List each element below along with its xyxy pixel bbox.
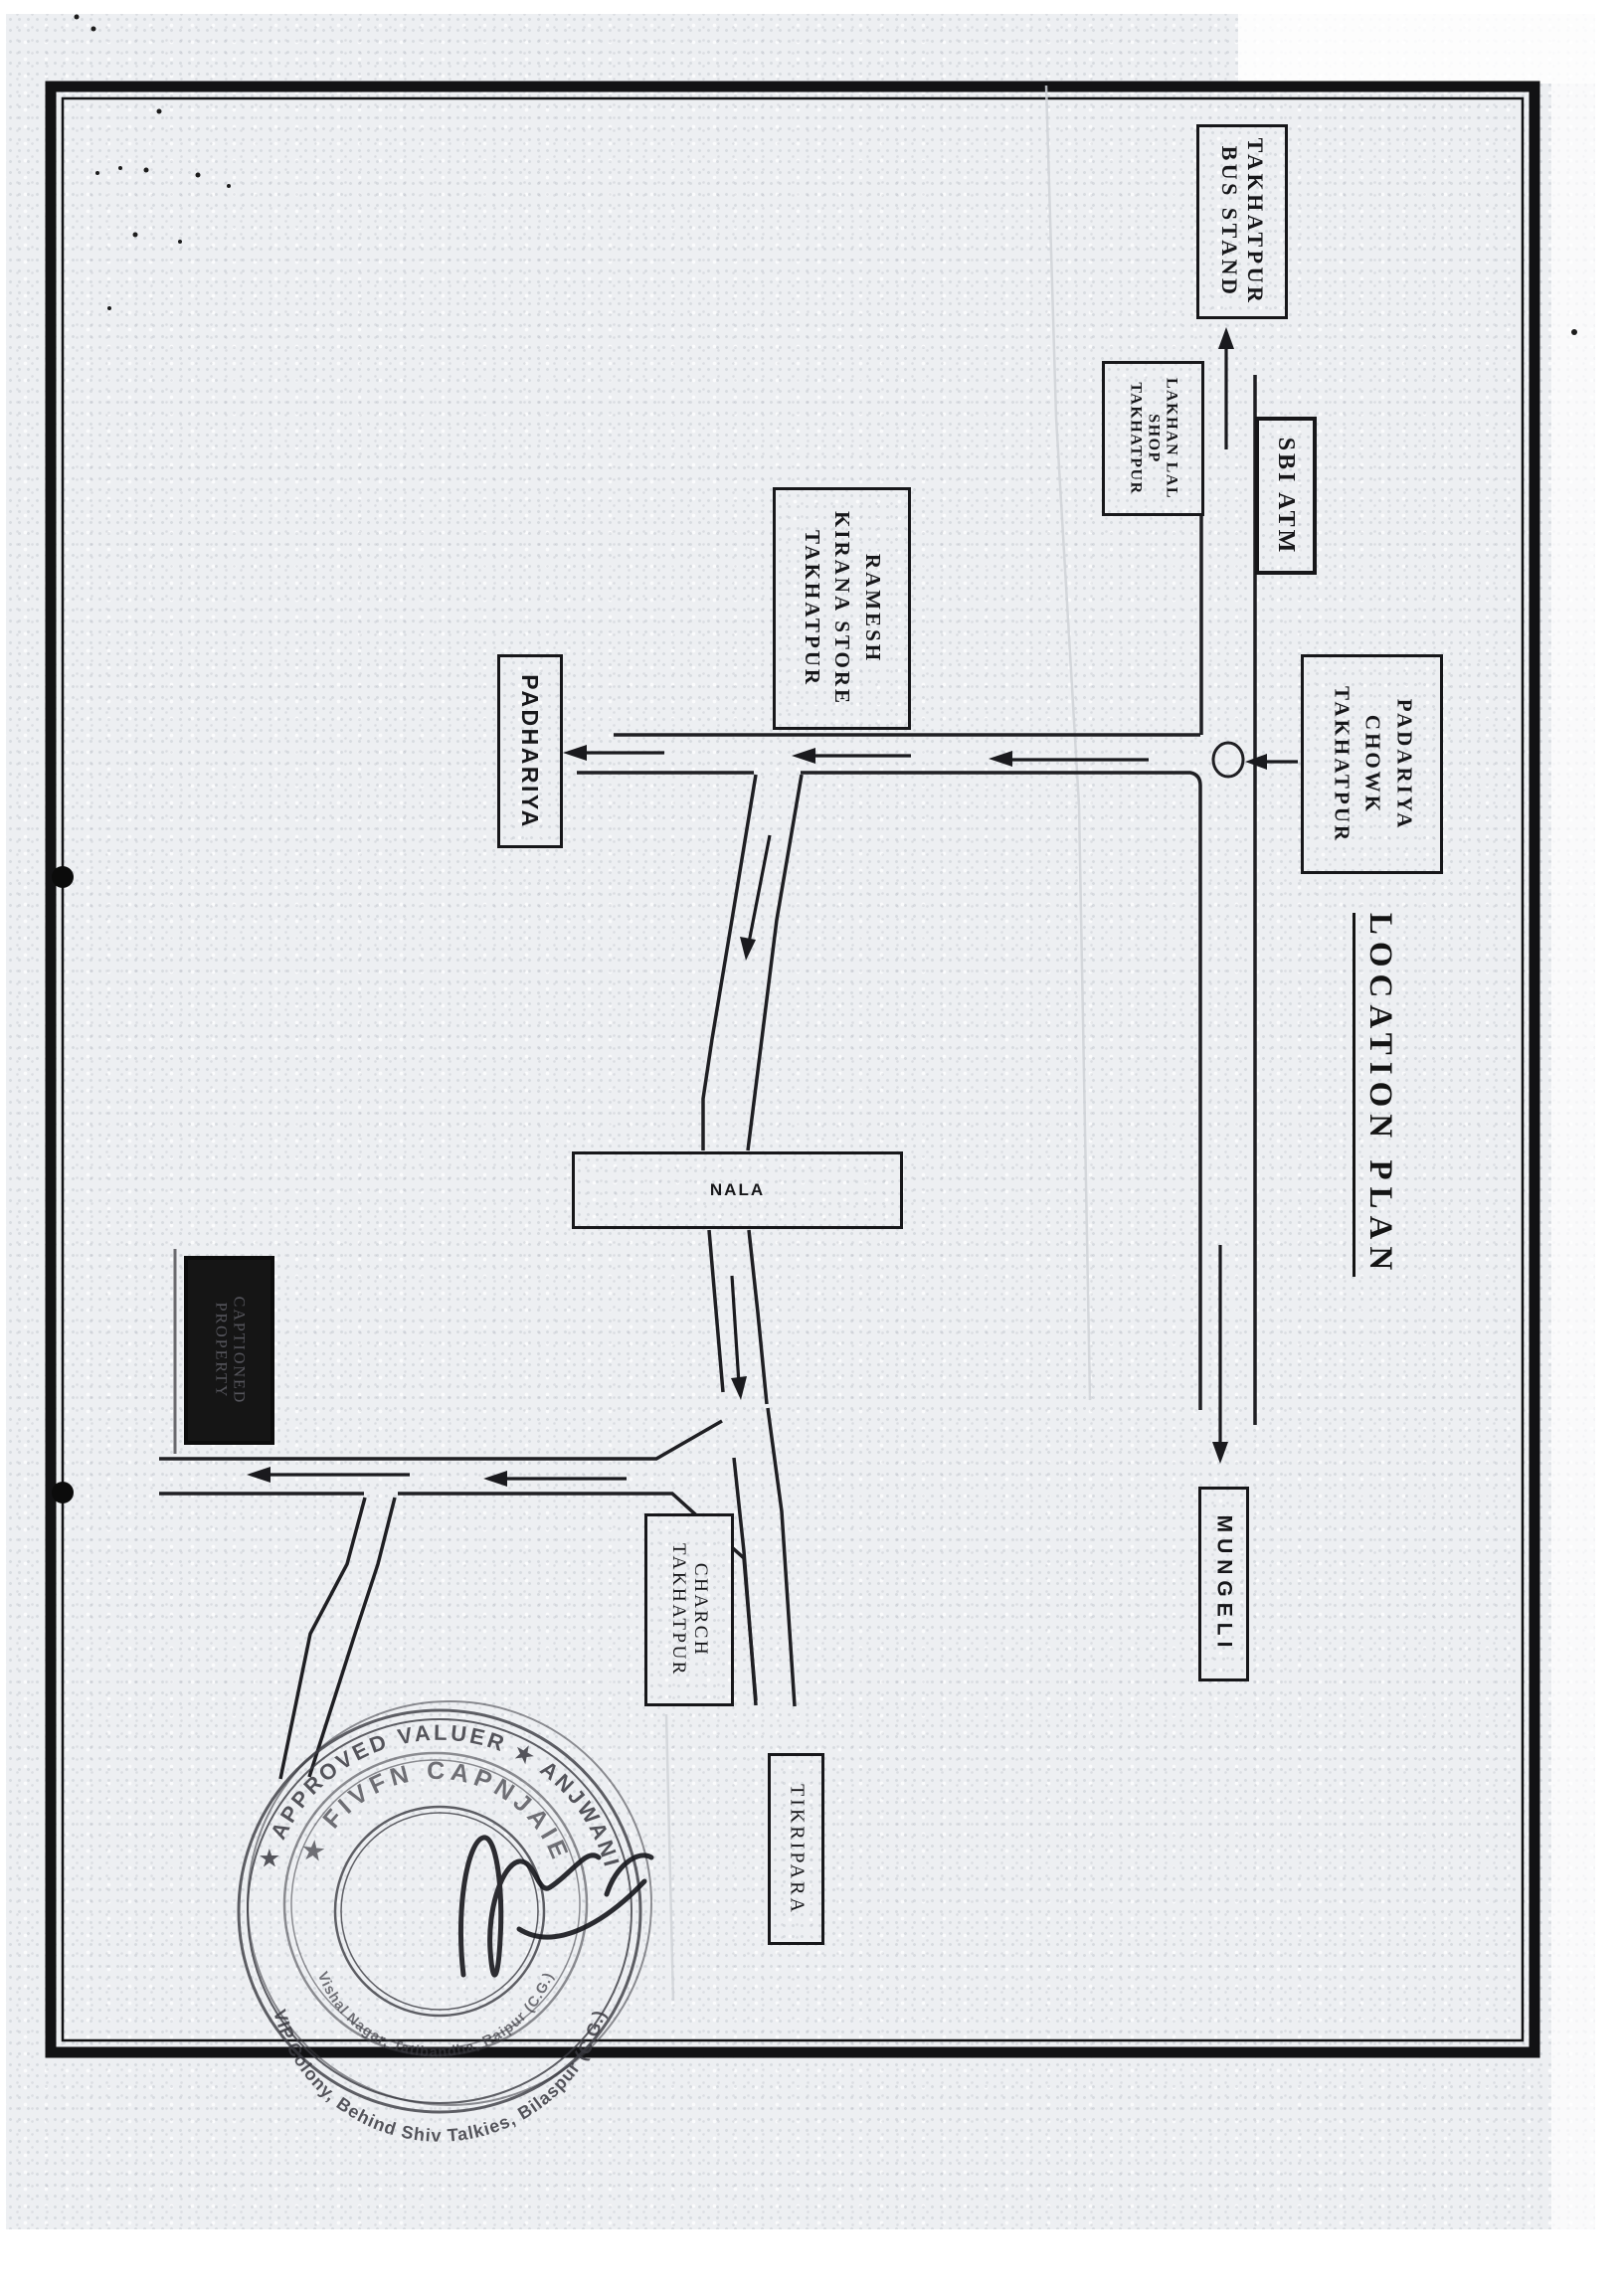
arrow-up-bus-stand bbox=[1218, 327, 1234, 349]
label-text: BUS STAND bbox=[1216, 146, 1242, 298]
label-text: CAPTIONED bbox=[230, 1297, 248, 1405]
label-text: TAKHATPUR bbox=[1325, 685, 1356, 842]
label-text: MUNGELI bbox=[1212, 1515, 1236, 1654]
label-box-padhariya: PADHARIYA bbox=[497, 654, 563, 848]
dust-specks bbox=[75, 15, 1578, 336]
church-road-left-edge bbox=[734, 1458, 756, 1705]
label-text: KIRANA STORE bbox=[826, 511, 856, 706]
branch-road-left-edge bbox=[703, 775, 756, 1150]
label-text: SBI ATM bbox=[1273, 437, 1300, 555]
label-text: PADARIYA bbox=[1387, 698, 1419, 830]
branch-road-right-below-nala bbox=[749, 1230, 767, 1404]
chowk-circle bbox=[1213, 743, 1243, 777]
arrow-down-nala bbox=[731, 1376, 747, 1400]
label-text: TAKHATPUR bbox=[1242, 138, 1268, 306]
label-text: TAKHATPUR bbox=[797, 530, 826, 687]
branch-road-right-edge bbox=[748, 775, 802, 1150]
label-text: CHARCH bbox=[689, 1563, 711, 1657]
arrow-down-mungeli bbox=[1212, 1442, 1228, 1464]
arrow-left-property-east bbox=[483, 1471, 507, 1487]
label-text: TAKHATPUR bbox=[1127, 382, 1145, 494]
label-text: TIKRIPARA bbox=[785, 1784, 808, 1915]
scan-fold-lines bbox=[666, 86, 1090, 2001]
label-text: PADHARIYA bbox=[517, 674, 544, 828]
page-title-block: LOCATION PLAN bbox=[1343, 910, 1408, 1280]
label-box-padariya-chowk: PADARIYA CHOWK TAKHATPUR bbox=[1301, 654, 1443, 874]
label-text: PROPERTY bbox=[212, 1303, 230, 1399]
label-box-takhatpur-bus-stand: TAKHATPUR BUS STAND bbox=[1196, 124, 1288, 319]
branch-road-left-below-nala bbox=[709, 1230, 723, 1392]
church-road-right-edge bbox=[768, 1408, 795, 1706]
label-text: TAKHATPUR bbox=[667, 1543, 689, 1677]
label-box-tikripara: TIKRIPARA bbox=[768, 1753, 824, 1945]
label-box-sbi-atm: SBI ATM bbox=[1255, 417, 1317, 575]
arrow-left-padhariya bbox=[563, 745, 587, 761]
arrow-down-branch bbox=[740, 937, 756, 961]
label-text: CHOWK bbox=[1356, 714, 1388, 813]
label-text: LAKHAN LAL bbox=[1163, 378, 1180, 499]
arrow-left-east bbox=[989, 751, 1012, 767]
label-text: SHOP bbox=[1145, 414, 1163, 463]
label-text: NALA bbox=[710, 1180, 765, 1200]
scanned-page: { "title": "LOCATION PLAN", "places": { … bbox=[0, 0, 1624, 2295]
label-box-ramesh-kirana-store: RAMESH KIRANA STORE TAKHATPUR bbox=[773, 487, 911, 730]
arrow-left-mid bbox=[792, 748, 815, 764]
label-text: RAMESH bbox=[857, 554, 887, 663]
label-box-captioned-property: CAPTIONED PROPERTY bbox=[184, 1256, 274, 1445]
stamp-ring-bottom-text: VIP Colony, Behind Shiv Talkies, Bilaspu… bbox=[270, 2008, 610, 2146]
label-box-nala: NALA bbox=[572, 1151, 903, 1229]
label-box-mungeli: MUNGELI bbox=[1198, 1487, 1249, 1681]
arrow-left-property-west bbox=[247, 1467, 271, 1483]
label-box-charch-takhatpur: CHARCH TAKHATPUR bbox=[644, 1513, 734, 1706]
road-padhariya-bottom-edge-and-main-left bbox=[801, 773, 1200, 1410]
page-title: LOCATION PLAN bbox=[1353, 913, 1398, 1277]
label-box-lakhan-lal-shop: LAKHAN LAL SHOP TAKHATPUR bbox=[1102, 361, 1204, 516]
rubber-stamp: ★ APPROVED VALUER ★ ANJWANI VIP Colony, … bbox=[239, 1701, 651, 2146]
